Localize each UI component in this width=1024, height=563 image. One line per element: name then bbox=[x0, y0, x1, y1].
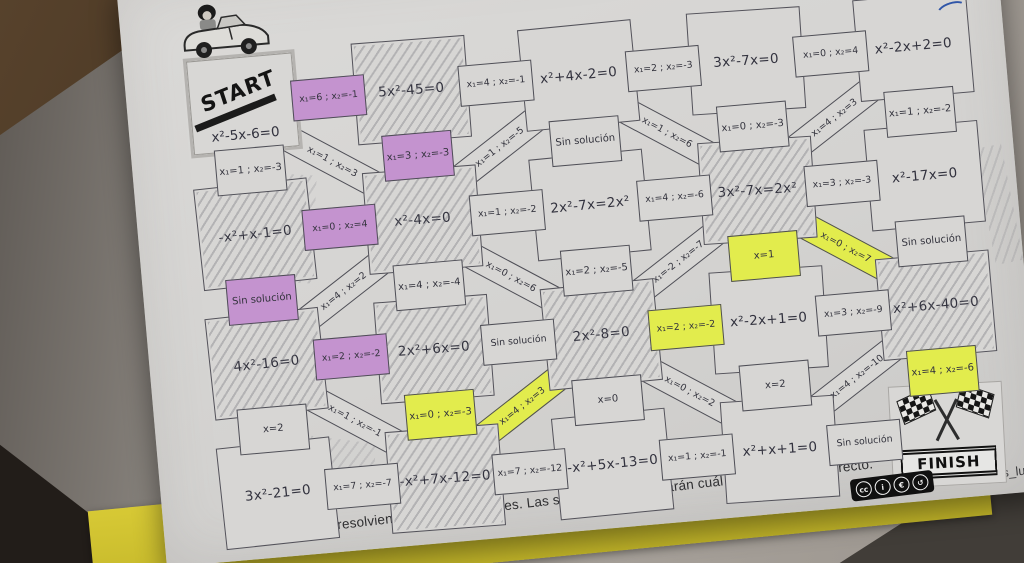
equation-box: x²+4x-2=0 bbox=[517, 19, 640, 132]
equation-text: 5x²-45=0 bbox=[378, 80, 445, 101]
equation-box: 3x²-7x=2x² bbox=[697, 136, 818, 245]
path-label: x₁=4 ; x₂=-6 bbox=[636, 174, 713, 221]
equation-box: 2x²-7x=2x² bbox=[528, 149, 651, 262]
path-label: x=0 bbox=[571, 374, 645, 426]
path-label: x₁=2 ; x₂=-5 bbox=[560, 245, 634, 297]
path-label: x₁=3 ; x₂=-3 bbox=[803, 160, 880, 207]
equation-box: 2x²+6x=0 bbox=[373, 294, 494, 404]
sa-arrow-icon: ↺ bbox=[911, 473, 929, 491]
path-label: x₁=2 ; x₂=-2 bbox=[313, 333, 390, 380]
equation-box: 3x²-21=0 bbox=[216, 436, 340, 550]
path-label: x₁=4 ; x₂=-4 bbox=[393, 259, 467, 311]
equation-text: 2x²-7x=2x² bbox=[550, 193, 631, 217]
equation-box: -x²+7x-12=0 bbox=[385, 423, 506, 533]
path-label: x₁=3 ; x₂=-3 bbox=[381, 130, 455, 182]
by-person-icon: i bbox=[874, 478, 892, 496]
path-label: x=2 bbox=[739, 360, 813, 412]
equation-text: 3x²-7x=0 bbox=[713, 51, 780, 71]
equation-box: -x²+x-1=0 bbox=[193, 177, 317, 291]
equation-text: 3x²-21=0 bbox=[244, 482, 312, 505]
equation-box: 4x²-16=0 bbox=[204, 307, 328, 421]
equation-text: x²-2x+2=0 bbox=[874, 35, 952, 58]
equation-text: 2x²+6x=0 bbox=[397, 338, 470, 359]
path-label: x₁=0 ; x₂=4 bbox=[792, 30, 869, 77]
path-label: x₁=0 ; x₂=-3 bbox=[716, 101, 790, 153]
path-label: Sin solución bbox=[826, 419, 903, 466]
equation-text: x²-4x=0 bbox=[394, 209, 452, 229]
cc-license-badge: cc i € ↺ bbox=[850, 470, 935, 502]
start-car-icon bbox=[175, 0, 276, 64]
equation-text: 3x²-7x=2x² bbox=[717, 180, 798, 201]
equation-box: x²-4x=0 bbox=[362, 164, 483, 274]
equation-box: x²+6x-40=0 bbox=[875, 249, 997, 361]
equation-box: x²-17x=0 bbox=[863, 120, 985, 232]
photo-scene: Natalia Bigorri 3.2 START x²-5x-6=0 bbox=[0, 0, 1024, 563]
path-label: x=1 bbox=[727, 230, 801, 282]
path-label: x₁=1 ; x₂=-1 bbox=[659, 433, 736, 480]
equation-text: x²+x+1=0 bbox=[742, 439, 818, 460]
equation-text: x²+6x-40=0 bbox=[892, 293, 979, 316]
equation-box: x²-2x+1=0 bbox=[708, 265, 829, 374]
worksheet-paper: Natalia Bigorri 3.2 START x²-5x-6=0 bbox=[116, 0, 1024, 563]
equation-text: x²+4x-2=0 bbox=[539, 64, 618, 87]
path-label: x₁=7 ; x₂=-12 bbox=[491, 448, 568, 495]
path-label: x₁=7 ; x₂=-7 bbox=[324, 463, 401, 510]
path-label: x₁=1 ; x₂=-2 bbox=[469, 189, 546, 236]
path-label: x₁=1 ; x₂=-3 bbox=[214, 144, 288, 196]
path-label: x₁=3 ; x₂=-9 bbox=[815, 289, 892, 336]
path-label: x₁=4 ; x₂=-6 bbox=[906, 345, 980, 397]
equation-box: 3x²-7x=0 bbox=[686, 6, 807, 115]
equation-box: x²+x+1=0 bbox=[720, 395, 841, 504]
path-label: Sin solución bbox=[549, 115, 623, 167]
path-label: x₁=4 ; x₂=-1 bbox=[457, 60, 534, 107]
path-label: x₁=2 ; x₂=-2 bbox=[647, 304, 724, 351]
path-label: x₁=0 ; x₂=-3 bbox=[404, 389, 478, 441]
equation-text: 4x²-16=0 bbox=[233, 352, 301, 375]
path-label: x₁=0 ; x₂=4 bbox=[301, 204, 378, 251]
path-label: x₁=1 ; x₂=-2 bbox=[883, 86, 957, 138]
path-label: x₁=2 ; x₂=-3 bbox=[625, 45, 702, 92]
equation-text: -x²+5x-13=0 bbox=[566, 452, 659, 477]
path-label: Sin solución bbox=[480, 319, 557, 366]
path-label: Sin solución bbox=[225, 274, 299, 326]
path-label: x=2 bbox=[236, 403, 310, 455]
path-label: x₁=6 ; x₂=-1 bbox=[290, 74, 367, 121]
equation-text: -x²+x-1=0 bbox=[218, 222, 293, 246]
equation-box: 5x²-45=0 bbox=[351, 35, 472, 145]
nc-currency-icon: € bbox=[893, 476, 911, 494]
cc-icon: cc bbox=[855, 480, 873, 498]
equation-text: -x²+7x-12=0 bbox=[399, 467, 491, 490]
equation-box: -x²+5x-13=0 bbox=[551, 408, 674, 521]
path-label: Sin solución bbox=[895, 215, 969, 267]
equation-text: 2x²-8=0 bbox=[572, 324, 631, 346]
start-cell: START x²-5x-6=0 bbox=[183, 49, 303, 158]
equation-box: 2x²-8=0 bbox=[540, 278, 663, 391]
equation-text: x²-17x=0 bbox=[891, 165, 958, 187]
equation-text: x²-2x+1=0 bbox=[730, 309, 808, 330]
